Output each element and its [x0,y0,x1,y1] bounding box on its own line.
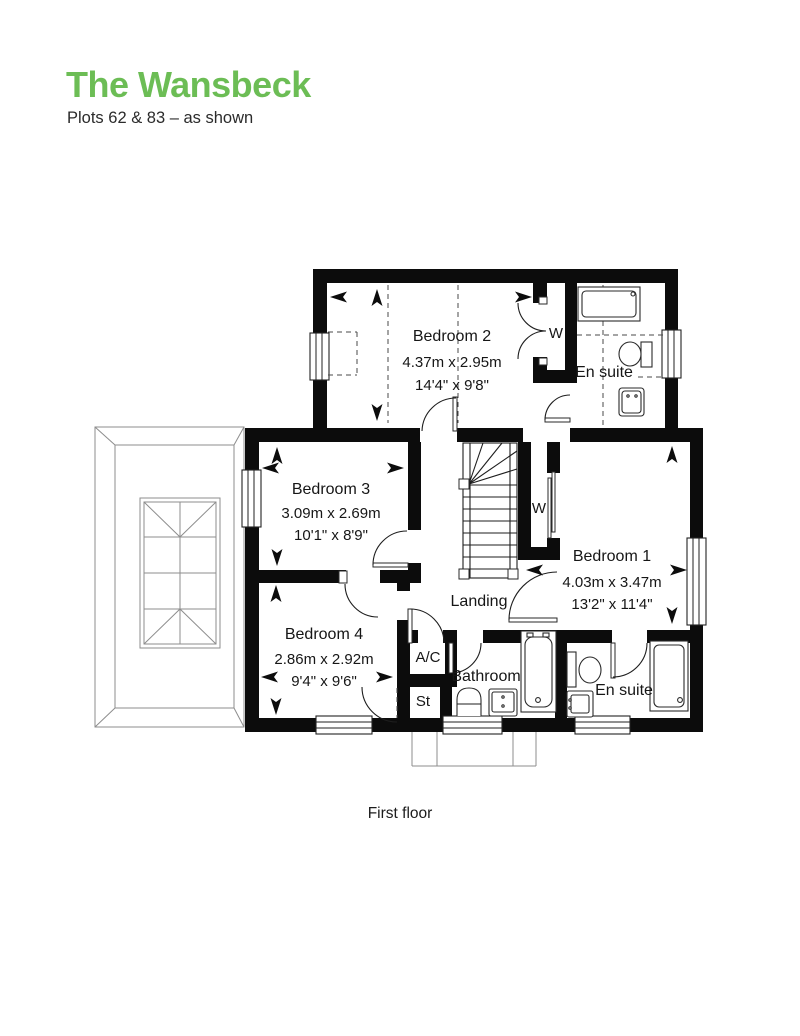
door-ensuite-top [545,395,570,422]
floorplan-drawing: Bedroom 2 4.37m x 2.95m 14'4" x 9'8" W E… [0,0,800,1036]
door-bedroom4 [339,571,378,617]
floorplan-page: The Wansbeck Plots 62 & 83 – as shown [0,0,800,1036]
door-ensuite-bottom [611,643,647,678]
label-bedroom2: Bedroom 2 [413,328,491,345]
label-landing: Landing [451,593,508,610]
window-bathroom-bottom [443,716,502,734]
label-bedroom3: Bedroom 3 [292,481,370,498]
door-bedroom2 [422,397,457,431]
sink-ensuite-top [619,388,644,416]
floor-caption: First floor [368,805,433,822]
window-bedroom3-left [242,470,261,527]
label-store: St [416,693,431,710]
label-bedroom1-metric: 4.03m x 3.47m [562,574,661,591]
toilet-bathroom [457,688,481,716]
bath-ensuite-top [578,287,640,321]
window-ensuite-top-right [662,330,681,378]
label-bedroom2-imperial: 14'4" x 9'8" [415,377,489,394]
window-bedroom4-bottom [316,716,372,734]
sink-ensuite-bottom [567,691,593,717]
label-bathroom: Bathroom [451,668,520,685]
label-bedroom2-metric: 4.37m x 2.95m [402,354,501,371]
label-wardrobe-bedroom1: W [532,500,547,517]
garage-rooflight [140,498,220,648]
sliding-door-wardrobe-bedroom1 [548,472,555,538]
label-bedroom1: Bedroom 1 [573,548,651,565]
window-ensuite-bottom [575,716,630,734]
label-ensuite-bottom: En suite [595,682,653,699]
shower-ensuite-bottom [650,641,688,711]
porch-outline [412,732,536,766]
garage-roof-outline [95,427,244,727]
staircase [459,443,518,579]
label-bedroom3-metric: 3.09m x 2.69m [281,505,380,522]
sink-bathroom [489,689,517,716]
label-wardrobe-top: W [549,325,564,342]
label-ensuite-top: En suite [575,364,633,381]
door-wardrobe-top-double [518,297,547,365]
door-bedroom3 [373,531,408,567]
label-bedroom4-imperial: 9'4" x 9'6" [291,673,357,690]
label-bedroom4-metric: 2.86m x 2.92m [274,651,373,668]
window-bedroom1-right [687,538,706,625]
label-bedroom1-imperial: 13'2" x 11'4" [571,596,652,613]
label-airing-cupboard: A/C [415,649,440,666]
window-bedroom2-left [310,333,329,380]
label-bedroom3-imperial: 10'1" x 8'9" [294,527,368,544]
label-bedroom4: Bedroom 4 [285,626,363,643]
bath-bathroom [521,631,556,712]
